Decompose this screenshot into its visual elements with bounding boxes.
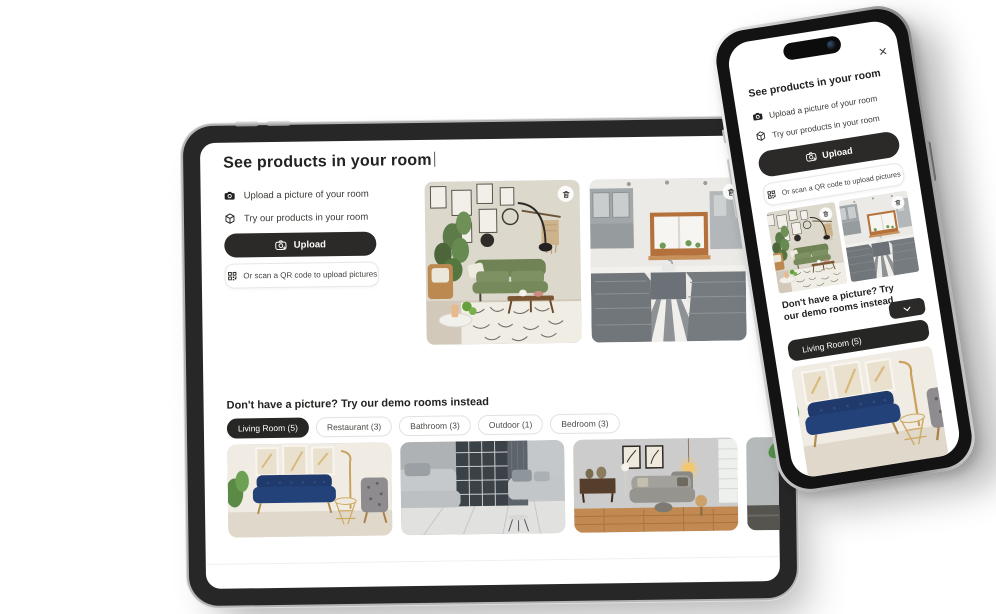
demo-room-card-navy-sofa[interactable] xyxy=(227,442,392,537)
feature-bullets: Upload a picture of your room Try our pr… xyxy=(224,188,370,225)
tablet-device: See products in your room Upload a pictu… xyxy=(183,118,798,606)
page-title-text: See products in your room xyxy=(223,152,432,172)
demo-room-tabs: Living Room (5) Restaurant (3) Bathroom … xyxy=(227,413,620,438)
selected-demo-tab-label: Living Room (5) xyxy=(801,335,862,354)
bullet-try-products: Try our products in your room xyxy=(224,211,369,225)
camera-icon xyxy=(224,190,236,202)
upload-button-label: Upload xyxy=(822,146,854,161)
tab-living-room[interactable]: Living Room (5) xyxy=(227,418,309,439)
tab-restaurant[interactable]: Restaurant (3) xyxy=(316,416,393,437)
demo-photo-warm-sectional xyxy=(573,438,738,533)
room-photo-green-sofa xyxy=(766,202,847,294)
uploaded-image-living-room xyxy=(424,180,581,345)
cube-icon xyxy=(224,213,236,225)
qr-code-icon xyxy=(766,188,777,199)
trash-icon xyxy=(822,210,830,218)
demo-photo-navy-sofa xyxy=(227,442,392,537)
room-photo-kitchen xyxy=(838,190,919,282)
uploaded-image-kitchen xyxy=(838,190,919,282)
uploaded-images xyxy=(766,190,919,293)
demo-room-gallery xyxy=(227,435,780,538)
upload-button[interactable]: Upload xyxy=(224,232,376,258)
delete-image-button[interactable] xyxy=(558,186,574,202)
screen-divider xyxy=(206,556,780,565)
upload-button-label: Upload xyxy=(294,239,326,250)
qr-code-icon xyxy=(226,271,237,282)
uploaded-image-living-room xyxy=(766,202,847,294)
trash-icon xyxy=(894,198,902,206)
demo-rooms-heading: Don't have a picture? Try our demo rooms… xyxy=(227,396,490,412)
trash-icon xyxy=(561,189,570,198)
demo-photo-navy-sofa xyxy=(791,346,949,478)
camera-icon xyxy=(751,110,764,123)
tablet-volume-button xyxy=(235,121,259,126)
tablet-volume-button xyxy=(267,121,291,126)
page-title: See products in your room xyxy=(223,152,435,173)
mockup-scene: See products in your room Upload a pictu… xyxy=(0,0,996,614)
tab-outdoor[interactable]: Outdoor (1) xyxy=(478,414,544,435)
qr-scan-button[interactable]: Or scan a QR code to upload pictures xyxy=(225,262,379,289)
text-cursor xyxy=(434,152,436,167)
dynamic-island xyxy=(782,35,842,61)
cube-icon xyxy=(755,130,768,143)
tab-bathroom[interactable]: Bathroom (3) xyxy=(399,415,471,436)
demo-room-image-navy-sofa[interactable] xyxy=(791,346,949,478)
tab-bedroom[interactable]: Bedroom (3) xyxy=(550,413,620,434)
uploaded-image-kitchen xyxy=(589,177,746,342)
uploaded-images xyxy=(424,177,746,344)
tablet-screen: See products in your room Upload a pictu… xyxy=(200,135,780,589)
room-photo-green-sofa xyxy=(424,180,581,345)
front-camera-lens xyxy=(826,40,836,50)
close-button[interactable]: ✕ xyxy=(878,47,889,59)
qr-scan-label: Or scan a QR code to upload pictures xyxy=(243,270,377,281)
bullet-upload-label: Upload a picture of your room xyxy=(244,188,369,201)
demo-room-card-grey-sofas[interactable] xyxy=(400,440,565,535)
qr-scan-label: Or scan a QR code to upload pictures xyxy=(781,169,901,197)
bullet-try-label: Try our products in your room xyxy=(244,211,368,224)
chevron-down-icon xyxy=(901,303,912,314)
demo-photo-grey-sofas xyxy=(400,440,565,535)
bullet-upload-picture: Upload a picture of your room xyxy=(224,188,369,202)
room-photo-kitchen xyxy=(589,177,746,342)
camera-plus-icon xyxy=(805,150,819,164)
camera-plus-icon xyxy=(275,238,288,251)
demo-room-card-warm-sectional[interactable] xyxy=(573,438,738,533)
